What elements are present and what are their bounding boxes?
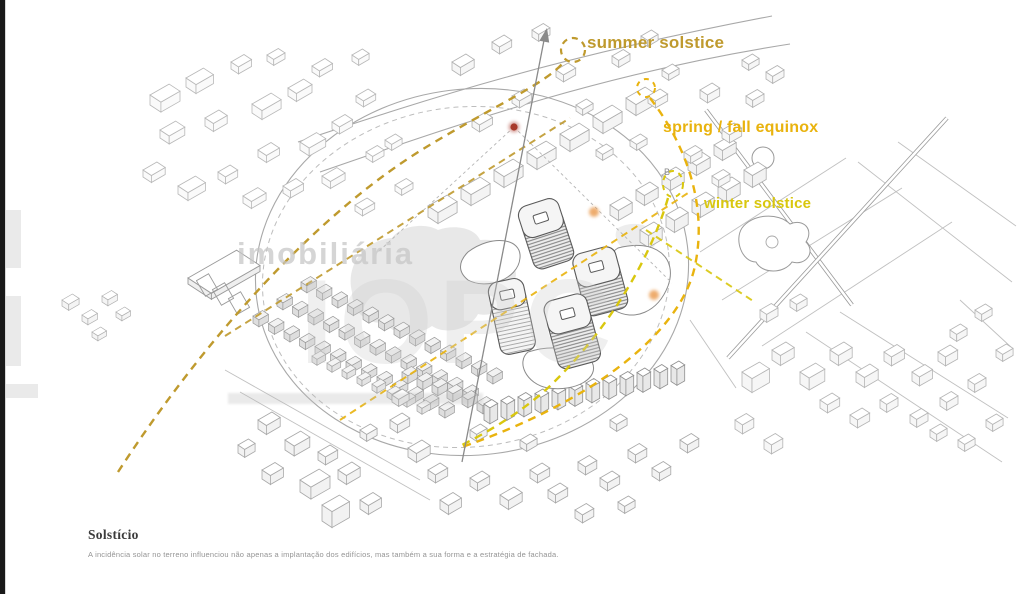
watermark-small-strip (228, 393, 483, 404)
caption-block: Solstício A incidência solar no terreno … (88, 527, 848, 559)
watermark-edge-fragment (6, 210, 21, 268)
left-edge-hairline (5, 0, 6, 594)
label-spring-fall-equinox: spring / fall equinox (663, 119, 818, 137)
solar-study-page: summer solstice spring / fall equinox wi… (0, 0, 1024, 594)
label-summer-solstice: summer solstice (587, 33, 724, 53)
watermark-edge-fragment (6, 384, 38, 398)
caption-body: A incidência solar no terreno influencio… (88, 550, 848, 559)
caption-title: Solstício (88, 527, 848, 543)
label-winter-solstice: winter solstice (704, 195, 811, 212)
watermark-edge-fragment (6, 296, 21, 366)
watermark-large-letters: IOPC (300, 262, 617, 382)
point-label-b: B (664, 167, 670, 177)
